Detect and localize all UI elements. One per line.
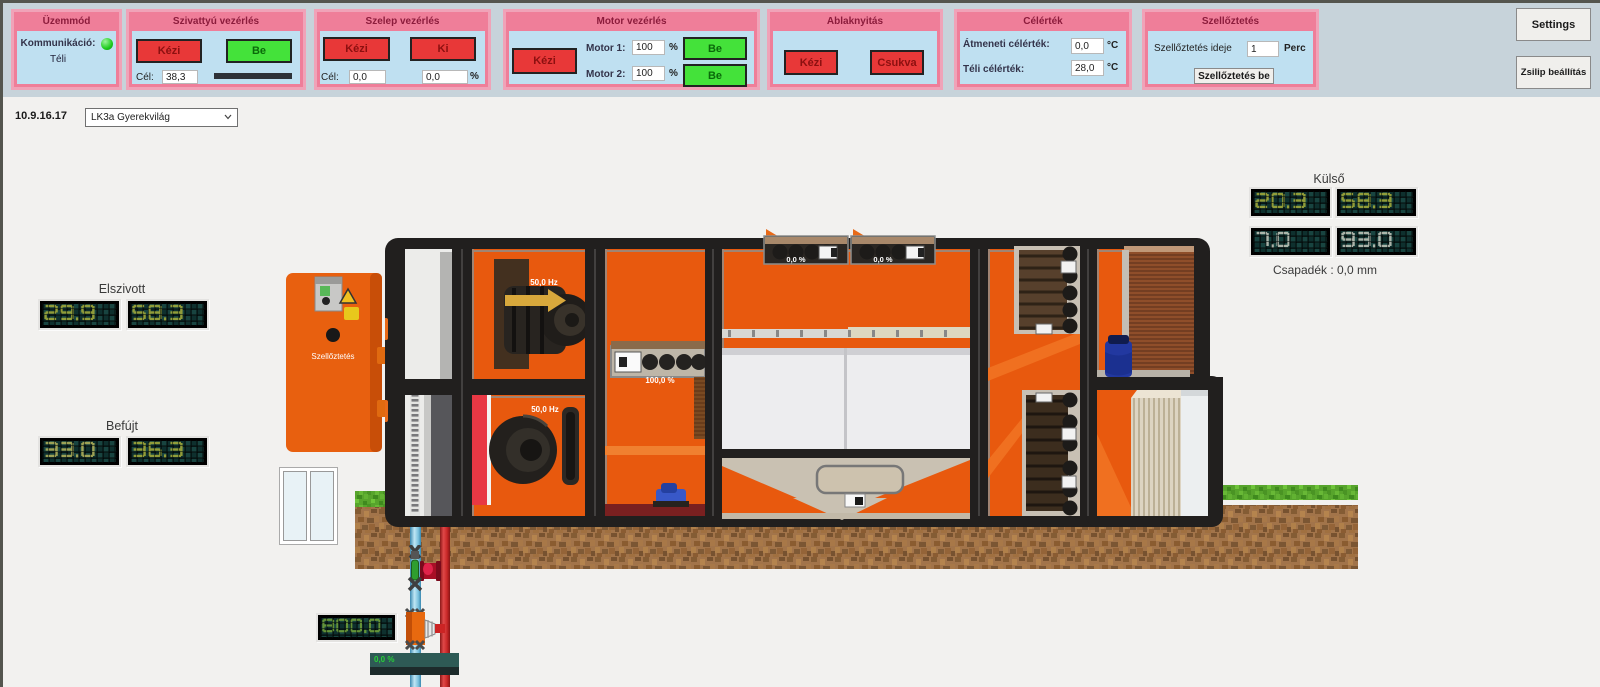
svg-text:0,0 %: 0,0 % (873, 255, 893, 264)
svg-text:50,0 Hz: 50,0 Hz (530, 278, 558, 287)
svg-text:50,0 Hz: 50,0 Hz (531, 405, 559, 414)
svg-text:100,0 %: 100,0 % (645, 376, 674, 385)
svg-text:0,0 %: 0,0 % (786, 255, 806, 264)
svg-text:Szellőztetés: Szellőztetés (311, 352, 354, 361)
